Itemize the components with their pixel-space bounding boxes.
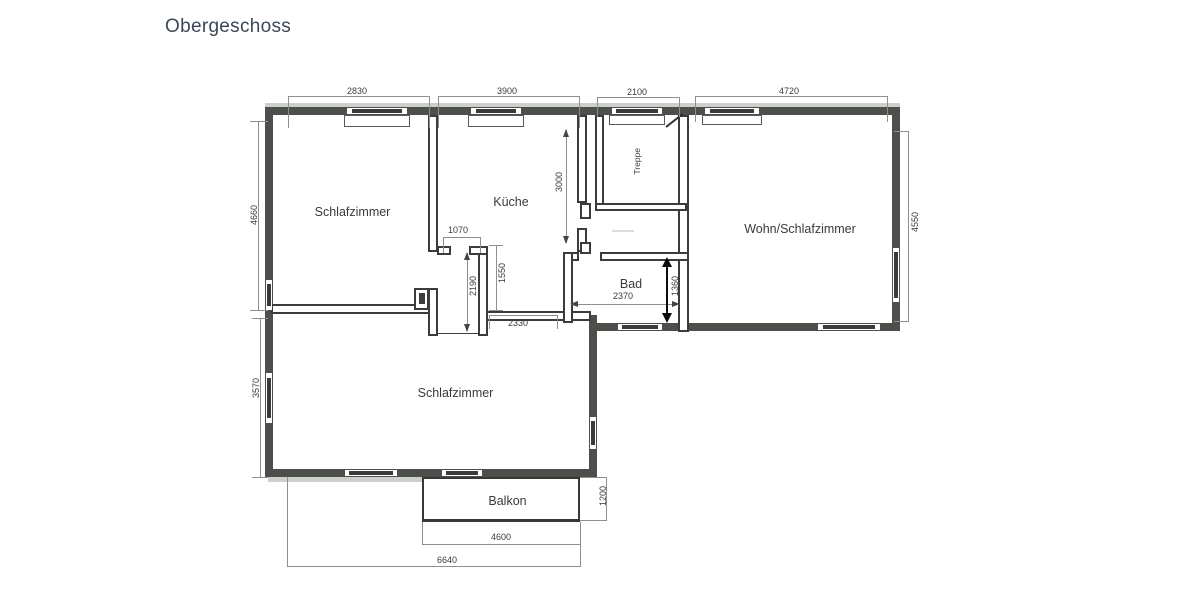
dim-top-bedroom-width: 2830 [347,86,367,96]
dim-arrow-up [464,252,470,260]
dim-tick [287,477,288,567]
dim-balcony-depth: 1200 [598,486,608,506]
dim-tick [429,96,430,128]
window-sill [702,115,762,125]
wall-bath-left [563,252,573,323]
dim-tick [557,315,558,329]
window-sill [344,115,410,127]
page-title: Obergeschoss [165,16,291,38]
dim-tick [580,477,607,478]
dim-arrow-down [563,236,569,244]
dim-tick [250,310,268,311]
wall-bath-top [600,252,689,261]
dim-line [287,566,581,567]
dim-line [695,96,888,97]
dim-left-upper-height: 4660 [249,205,259,225]
faint-mark [612,230,634,232]
room-label-bedroom-bottom: Schlafzimmer [398,386,513,400]
dim-tick [887,96,888,122]
window-glazing [616,109,658,113]
room-label-balcony: Balkon [475,494,540,508]
dim-stairs-width: 2100 [627,87,647,97]
window-glazing [823,325,875,329]
dim-tick [580,522,581,545]
window-glazing [622,325,658,329]
wall-kitchen-niche-right [469,246,488,255]
wall-exterior-right-lower [589,315,597,477]
window-glazing [267,378,271,418]
room-label-stairs: Treppe [632,148,642,175]
dim-line [908,131,909,322]
window-sill [468,115,524,127]
dim-line [566,130,567,243]
dim-arrow-up [563,129,569,137]
wall-hall-stub-upper [580,203,591,219]
dim-line [288,96,430,97]
dim-tick [489,310,503,311]
dim-tick [252,318,268,319]
wall-exterior-bottom-left [265,469,597,477]
window-glazing [476,109,516,113]
wall-corridor-right [478,252,488,336]
dim-niche-width: 1070 [448,225,468,235]
dim-line [571,304,679,305]
dim-tick [580,545,581,567]
dim-tick [250,121,268,122]
dim-kitchen-depth: 3000 [554,172,564,192]
dim-arrow-up [662,257,672,267]
dim-corridor-height: 2190 [468,276,478,296]
wall-bedroom-bottom-top [486,311,591,321]
wall-hall-stub-lower [580,242,591,254]
room-label-bath: Bad [615,277,647,291]
dim-bottom-total-width: 6640 [437,555,457,565]
dim-kitchen-width: 3900 [497,86,517,96]
dim-tick [695,96,696,122]
dim-arrow-down [662,313,672,323]
dim-tick [288,96,289,128]
window-glazing [349,471,393,475]
dim-line [422,544,581,545]
window-glazing [710,109,754,113]
dim-tick [443,237,444,253]
wall-stairs-left [595,115,604,208]
wall-kitchen-right [577,115,587,203]
wall-bedroom-kitchen [428,115,438,252]
dim-line [438,96,580,97]
room-label-kitchen: Küche [480,195,542,209]
dim-tick [597,97,598,117]
window-glazing [446,471,478,475]
dim-bath-height: 1360 [670,276,680,296]
dim-tick [489,245,503,246]
window-glazing [267,284,271,306]
dim-line [597,97,680,98]
dim-balcony-width: 4600 [491,532,511,542]
dim-arrow-right [672,301,680,307]
corridor-door-line [438,333,478,334]
dim-tick [894,131,909,132]
window-glazing [591,421,595,445]
dim-tick [679,97,680,117]
dim-tick [422,522,423,545]
wall-bedroom-top-bottom [271,304,430,314]
dim-line [443,237,481,238]
wall-stairs-bottom [595,203,687,211]
dim-tick [489,315,490,329]
chimney-core [419,293,425,304]
dim-left-lower-height: 3570 [251,378,261,398]
dim-line [666,260,668,320]
dim-tick [480,237,481,253]
wall-stairs-living-divider [678,115,689,332]
dim-arrow-down [464,324,470,332]
wall-kitchen-niche-left [437,246,451,255]
dim-tick [579,96,580,128]
dim-tick [894,321,909,322]
dim-line [489,315,558,316]
window-sill [609,115,665,125]
floor-plan-page: Obergeschoss [0,0,1200,600]
dim-corridor-width: 2330 [508,318,528,328]
dim-bath-width: 2370 [613,291,633,301]
dim-living-width: 4720 [779,86,799,96]
dim-passage-height: 1550 [497,263,507,283]
dim-right-height: 4550 [910,212,920,232]
dim-tick [580,520,607,521]
dim-tick [252,477,268,478]
room-label-bedroom-top: Schlafzimmer [295,205,410,219]
window-glazing [894,252,898,298]
dim-tick [438,96,439,128]
room-label-living-bedroom: Wohn/Schlafzimmer [730,222,870,236]
dim-arrow-left [570,301,578,307]
window-glazing [352,109,402,113]
